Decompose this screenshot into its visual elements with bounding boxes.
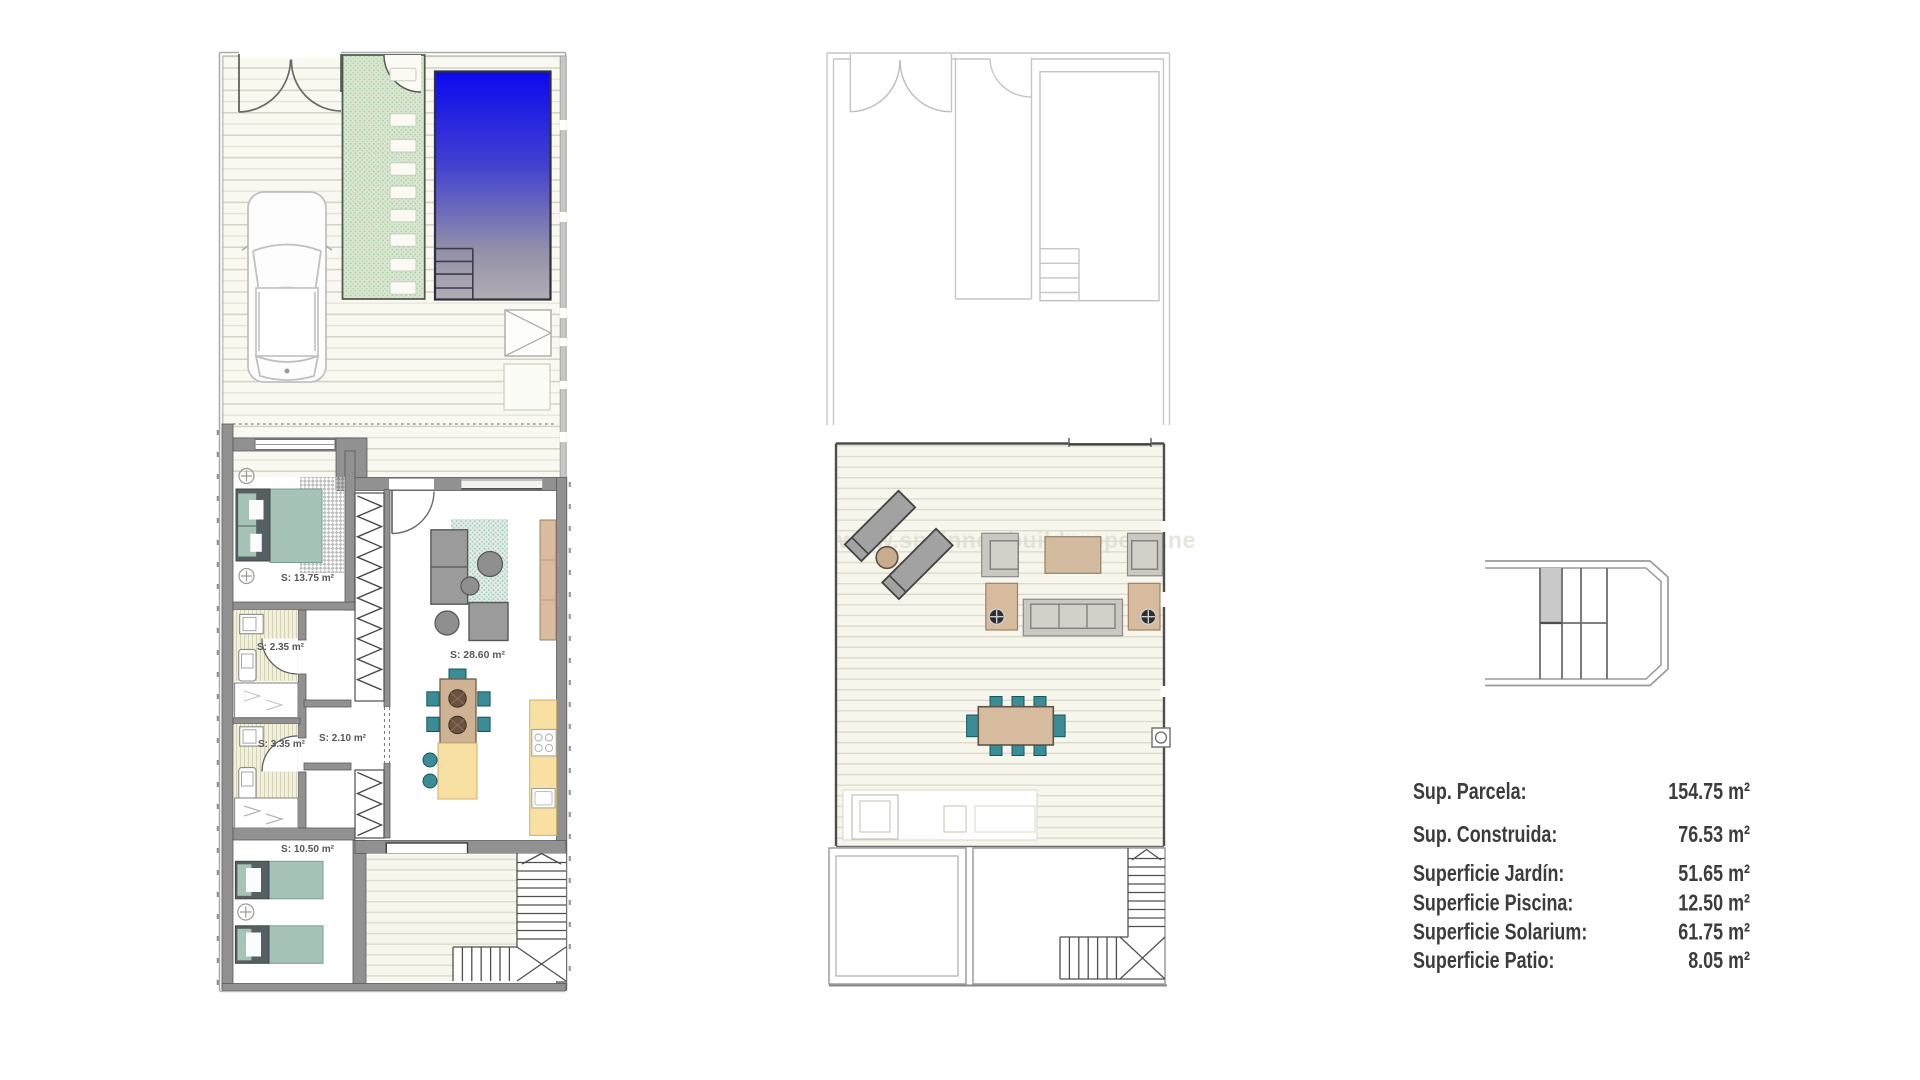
svg-text:S: 28.60 m²: S: 28.60 m² xyxy=(450,650,506,661)
svg-text:S: 2.10 m²: S: 2.10 m² xyxy=(319,733,367,744)
svg-text:Superficie Solarium:: Superficie Solarium: xyxy=(1413,919,1587,945)
svg-text:76.53 m²: 76.53 m² xyxy=(1678,822,1750,848)
svg-text:Sup. Construida:: Sup. Construida: xyxy=(1413,822,1557,848)
svg-text:8.05 m²: 8.05 m² xyxy=(1688,948,1750,974)
svg-text:51.65 m²: 51.65 m² xyxy=(1678,861,1750,887)
svg-text:154.75 m²: 154.75 m² xyxy=(1668,779,1750,805)
svg-text:Superficie Piscina:: Superficie Piscina: xyxy=(1413,890,1573,916)
svg-text:S: 2.35 m²: S: 2.35 m² xyxy=(257,642,305,653)
svg-text:S: 3.35 m²: S: 3.35 m² xyxy=(258,739,306,750)
svg-text:Superficie Jardín:: Superficie Jardín: xyxy=(1413,861,1564,887)
svg-text:61.75 m²: 61.75 m² xyxy=(1678,919,1750,945)
svg-text:S: 10.50 m²: S: 10.50 m² xyxy=(281,844,335,855)
svg-text:S: 13.75 m²: S: 13.75 m² xyxy=(281,573,335,584)
svg-text:Superficie Patio:: Superficie Patio: xyxy=(1413,948,1554,974)
svg-text:12.50 m²: 12.50 m² xyxy=(1678,890,1750,916)
svg-text:Sup. Parcela:: Sup. Parcela: xyxy=(1413,779,1527,805)
